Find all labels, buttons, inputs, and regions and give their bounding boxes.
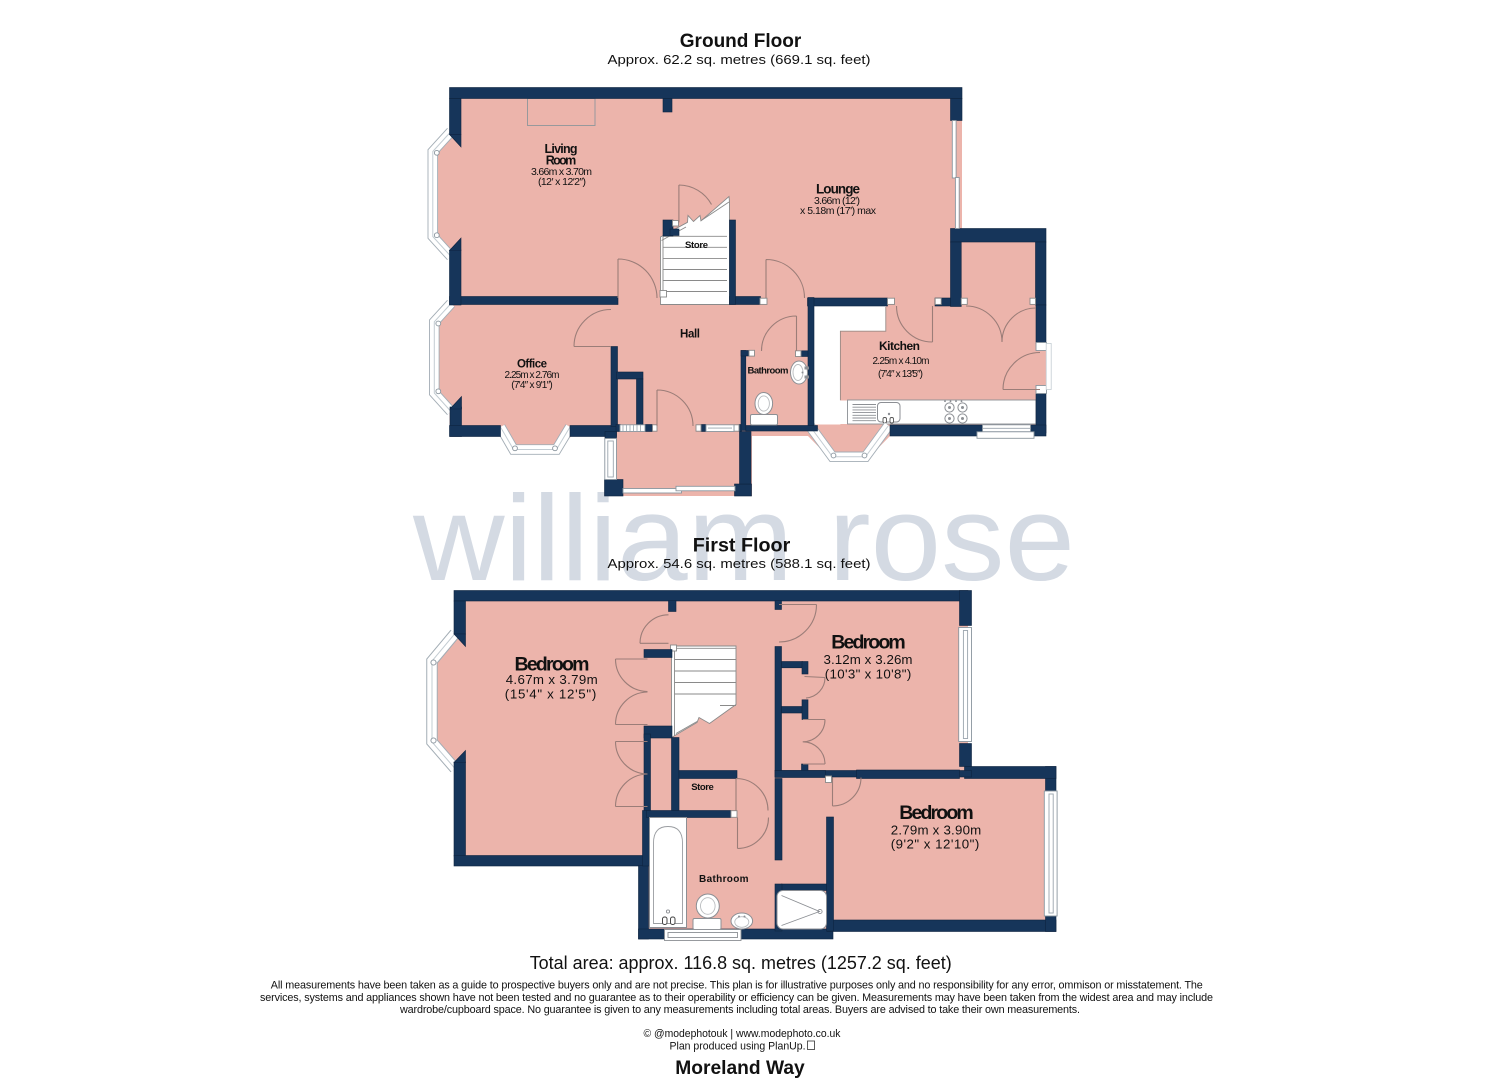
svg-text:Bedroom: Bedroom — [899, 802, 974, 824]
svg-text:2.25m x 4.10m: 2.25m x 4.10m — [873, 356, 930, 367]
svg-text:Hall: Hall — [680, 329, 700, 341]
svg-text:(12′ x 12′2″): (12′ x 12′2″) — [538, 176, 586, 188]
svg-text:x 5.18m (17') max: x 5.18m (17') max — [800, 205, 877, 217]
svg-text:wardrobe/cupboard space. No gu: wardrobe/cupboard space. No guarantee is… — [399, 1004, 1080, 1016]
svg-text:4.67m x 3.79m: 4.67m x 3.79m — [506, 672, 598, 687]
svg-text:(15'4" x 12'5"): (15'4" x 12'5") — [505, 687, 597, 702]
svg-text:(7′4″ x 13′5″): (7′4″ x 13′5″) — [878, 369, 923, 380]
svg-text:(7′4″ x 9′1″): (7′4″ x 9′1″) — [511, 380, 553, 391]
svg-text:Plan produced using PlanUp.: Plan produced using PlanUp. — [670, 1041, 806, 1053]
svg-text:3.12m x 3.26m: 3.12m x 3.26m — [824, 652, 913, 667]
svg-text:Bathroom: Bathroom — [699, 874, 749, 885]
svg-text:Ground Floor: Ground Floor — [680, 31, 802, 52]
svg-text:(9'2" x 12'10"): (9'2" x 12'10") — [891, 837, 980, 852]
svg-text:© @modephotouk | www.modephoto: © @modephotouk | www.modephoto.co.uk — [644, 1028, 841, 1040]
svg-text:Moreland Way: Moreland Way — [675, 1057, 805, 1079]
svg-text:Store: Store — [691, 782, 714, 793]
svg-text:Approx. 62.2 sq. metres (669.1: Approx. 62.2 sq. metres (669.1 sq. feet) — [608, 53, 871, 67]
svg-text:Office: Office — [517, 359, 547, 371]
svg-text:Kitchen: Kitchen — [879, 339, 920, 353]
svg-text:Bathroom: Bathroom — [748, 366, 789, 377]
svg-text:First Floor: First Floor — [693, 536, 791, 557]
svg-text:2.79m x 3.90m: 2.79m x 3.90m — [891, 823, 982, 838]
svg-text:services, systems and applianc: services, systems and appliances shown h… — [260, 992, 1213, 1004]
svg-text:Store: Store — [685, 240, 708, 251]
svg-text:All measurements have been tak: All measurements have been taken as a gu… — [271, 980, 1203, 992]
svg-text:Total area: approx. 116.8 sq.: Total area: approx. 116.8 sq. metres (12… — [530, 952, 952, 973]
svg-text:Bedroom: Bedroom — [831, 632, 906, 654]
svg-text:Approx. 54.6 sq. metres (588.1: Approx. 54.6 sq. metres (588.1 sq. feet) — [608, 557, 871, 571]
svg-text:(10'3" x 10'8"): (10'3" x 10'8") — [825, 667, 912, 682]
